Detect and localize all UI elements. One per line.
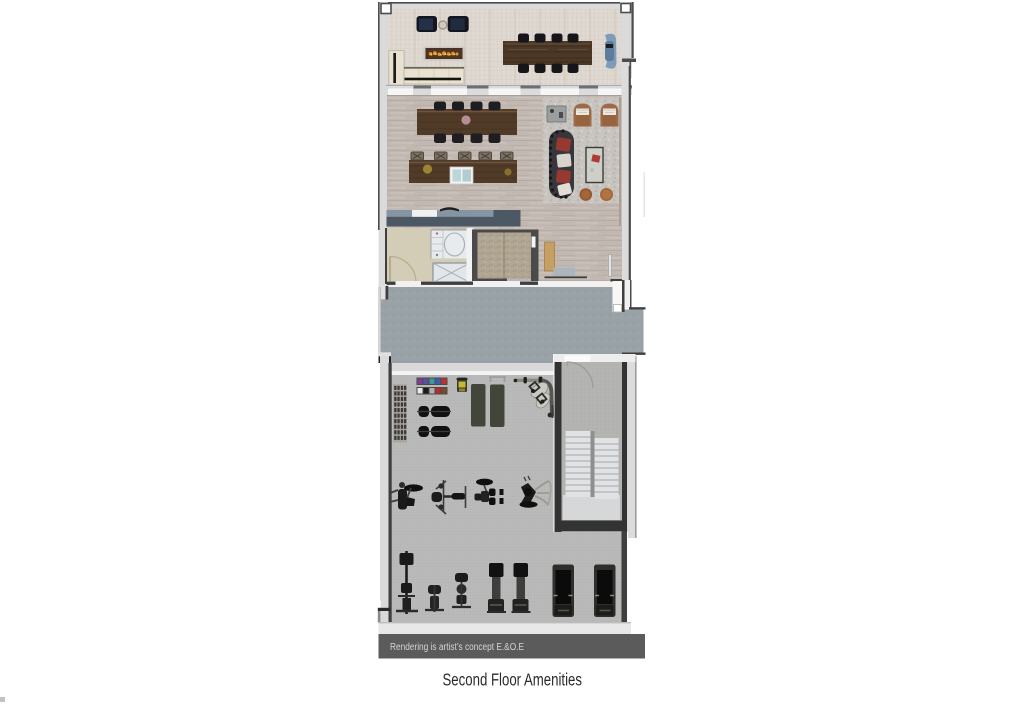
svg-text:Second Floor Amenities: Second Floor Amenities	[443, 669, 583, 689]
svg-text:Rendering is artist’s concept: Rendering is artist’s concept E.&O.E	[390, 642, 524, 653]
